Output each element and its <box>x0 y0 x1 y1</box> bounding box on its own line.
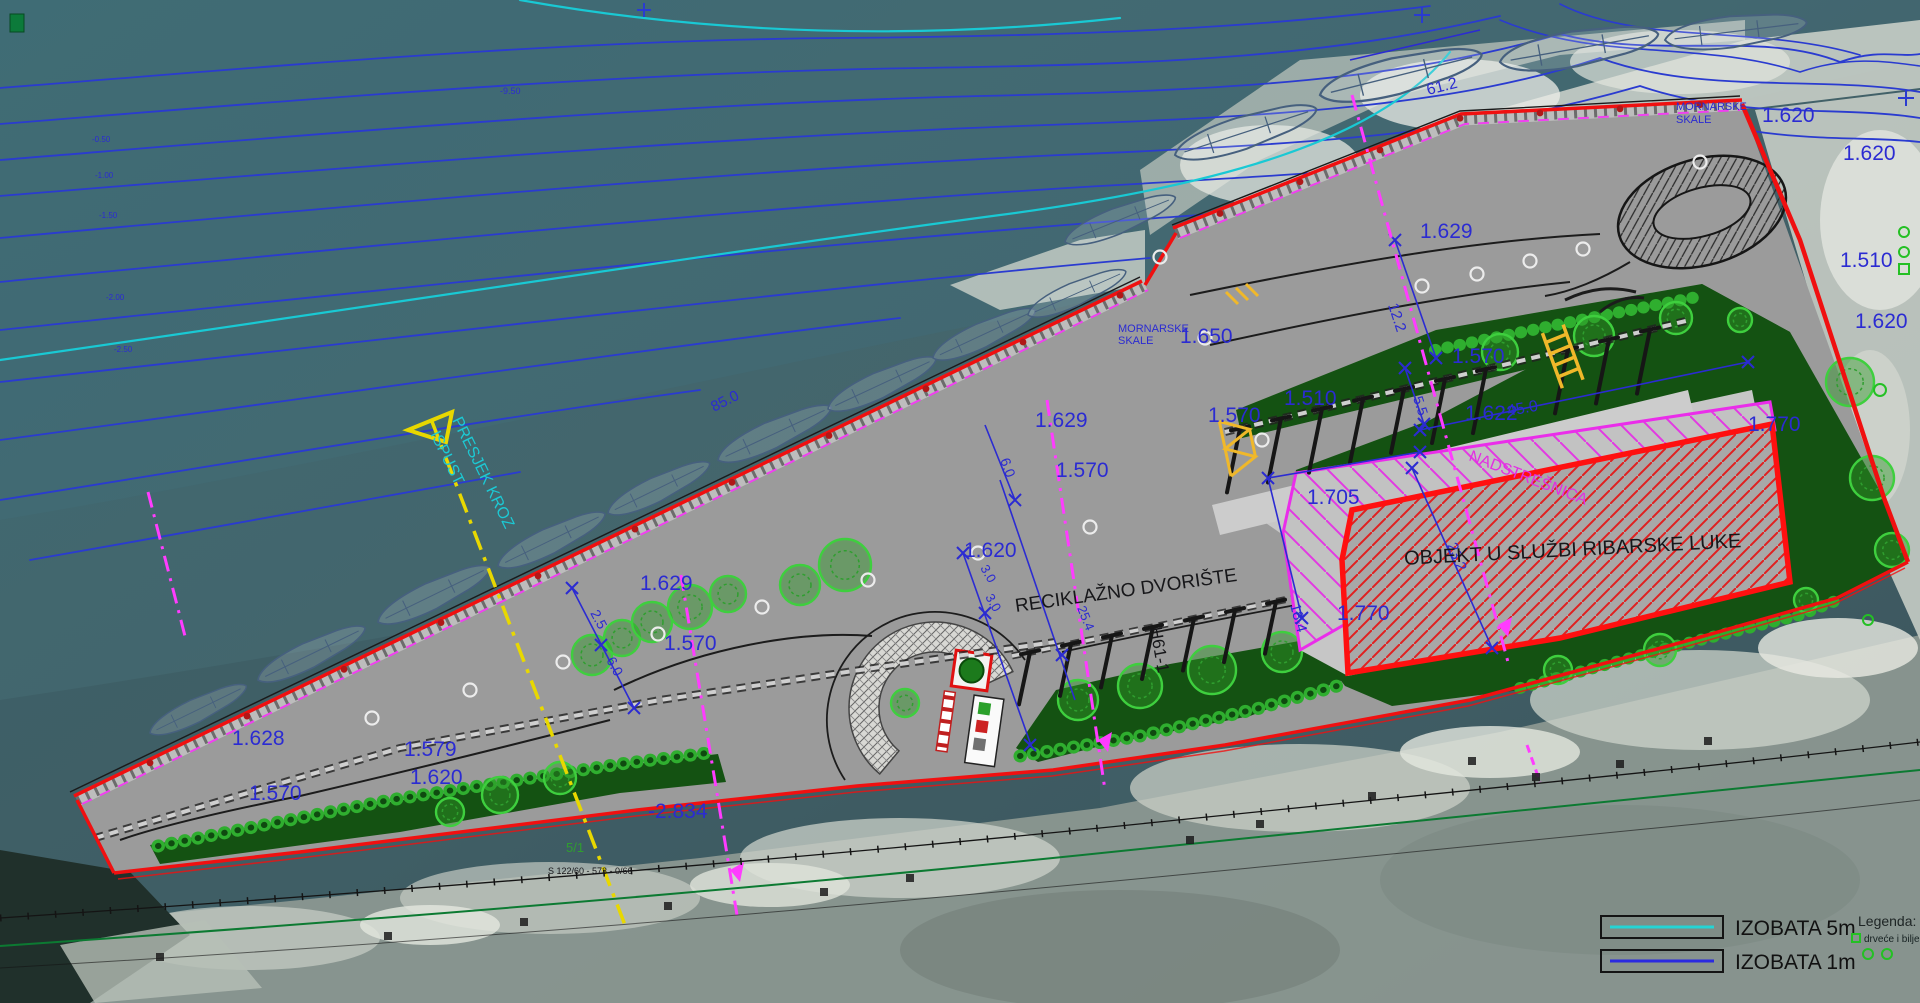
bollard-icon <box>1020 339 1027 346</box>
rock-marker <box>1616 760 1624 768</box>
rock-marker <box>384 932 392 940</box>
legend-title: Legenda: <box>1858 913 1916 929</box>
map-label: -2.50 <box>114 345 133 354</box>
map-label: 1.570 <box>1208 404 1261 427</box>
tree-icon <box>710 576 746 612</box>
bollard-icon <box>1117 292 1124 299</box>
map-label: 5/1 <box>566 840 584 855</box>
map-label: 1.620 <box>1843 142 1896 165</box>
bollard-icon <box>1617 105 1624 112</box>
tree-icon <box>1728 308 1752 332</box>
rock-marker <box>1256 820 1264 828</box>
bollard-icon <box>438 619 445 626</box>
map-label: 1.629 <box>640 572 693 595</box>
map-label: -1.00 <box>95 171 114 180</box>
map-label: 1.579 <box>404 738 457 761</box>
rock-marker <box>1532 773 1540 781</box>
map-label: MORNARSKE <box>1676 101 1747 113</box>
map-label: 1.510 <box>1840 249 1893 272</box>
tree-icon <box>1188 646 1236 694</box>
rock-marker <box>664 902 672 910</box>
rock-marker <box>1368 792 1376 800</box>
bollard-icon <box>147 759 154 766</box>
map-label: -0.50 <box>92 135 111 144</box>
map-label: 1.510 <box>1284 387 1337 410</box>
map-label: 1.570 <box>664 632 717 655</box>
bollard-icon <box>341 666 348 673</box>
tree-icon <box>544 762 576 794</box>
site-plan-page: 1.6281.5701.5791.6201.6291.570-2.8341.62… <box>0 0 1920 1003</box>
bollard-icon <box>535 572 542 579</box>
map-label: 1.570 <box>249 782 302 805</box>
map-label: 1.620 <box>1762 104 1815 127</box>
map-label: 1.705 <box>1307 486 1360 509</box>
bollard-icon <box>826 432 833 439</box>
rock-marker <box>1468 757 1476 765</box>
map-label: 1.629 <box>1035 409 1088 432</box>
rock-marker <box>520 918 528 926</box>
legend-note: drveće i bilje <box>1864 934 1920 945</box>
tree-icon <box>436 798 464 826</box>
map-label: -9.50 <box>500 86 521 96</box>
legend-label-izobata1: IZOBATA 1m <box>1735 951 1856 974</box>
map-label: SKALE <box>1676 114 1711 126</box>
map-label: MORNARSKE <box>1118 323 1189 335</box>
bollard-icon <box>1217 210 1224 217</box>
tree-icon <box>482 777 518 813</box>
map-label: 1.770 <box>1337 602 1390 625</box>
legend-label-izobata5: IZOBATA 5m <box>1735 917 1856 940</box>
site-plan-canvas: 1.6281.5701.5791.6201.6291.570-2.8341.62… <box>0 0 1920 1003</box>
rock-marker <box>1704 737 1712 745</box>
map-label: 1.629 <box>1420 220 1473 243</box>
rock-marker <box>156 953 164 961</box>
bollard-icon <box>1457 115 1464 122</box>
bollard-icon <box>729 479 736 486</box>
map-label: SKALE <box>1118 335 1153 347</box>
map-label: -2.00 <box>106 293 125 302</box>
map-label: 1.620 <box>964 539 1017 562</box>
map-label: -1.50 <box>99 211 118 220</box>
rock-marker <box>1186 836 1194 844</box>
bollard-icon <box>1297 178 1304 185</box>
green-marker-icon <box>10 14 24 32</box>
bollard-icon <box>632 526 639 533</box>
tree-icon <box>891 689 919 717</box>
map-label: 1.620 <box>1855 310 1908 333</box>
tree-icon <box>780 565 820 605</box>
rock-marker <box>906 874 914 882</box>
rock-marker <box>820 888 828 896</box>
bollard-icon <box>244 713 251 720</box>
map-label: S 122/60 - 573 - 0/66 <box>548 866 633 876</box>
map-label: 1.770 <box>1748 413 1801 436</box>
map-label: 1.620 <box>410 766 463 789</box>
map-label: -2.834 <box>648 800 708 823</box>
bollard-icon <box>923 385 930 392</box>
map-label: 1.570 <box>1452 345 1505 368</box>
map-label: 1.570 <box>1056 459 1109 482</box>
bollard-icon <box>1377 147 1384 154</box>
bollard-icon <box>1537 110 1544 117</box>
map-label: 1.628 <box>232 727 285 750</box>
